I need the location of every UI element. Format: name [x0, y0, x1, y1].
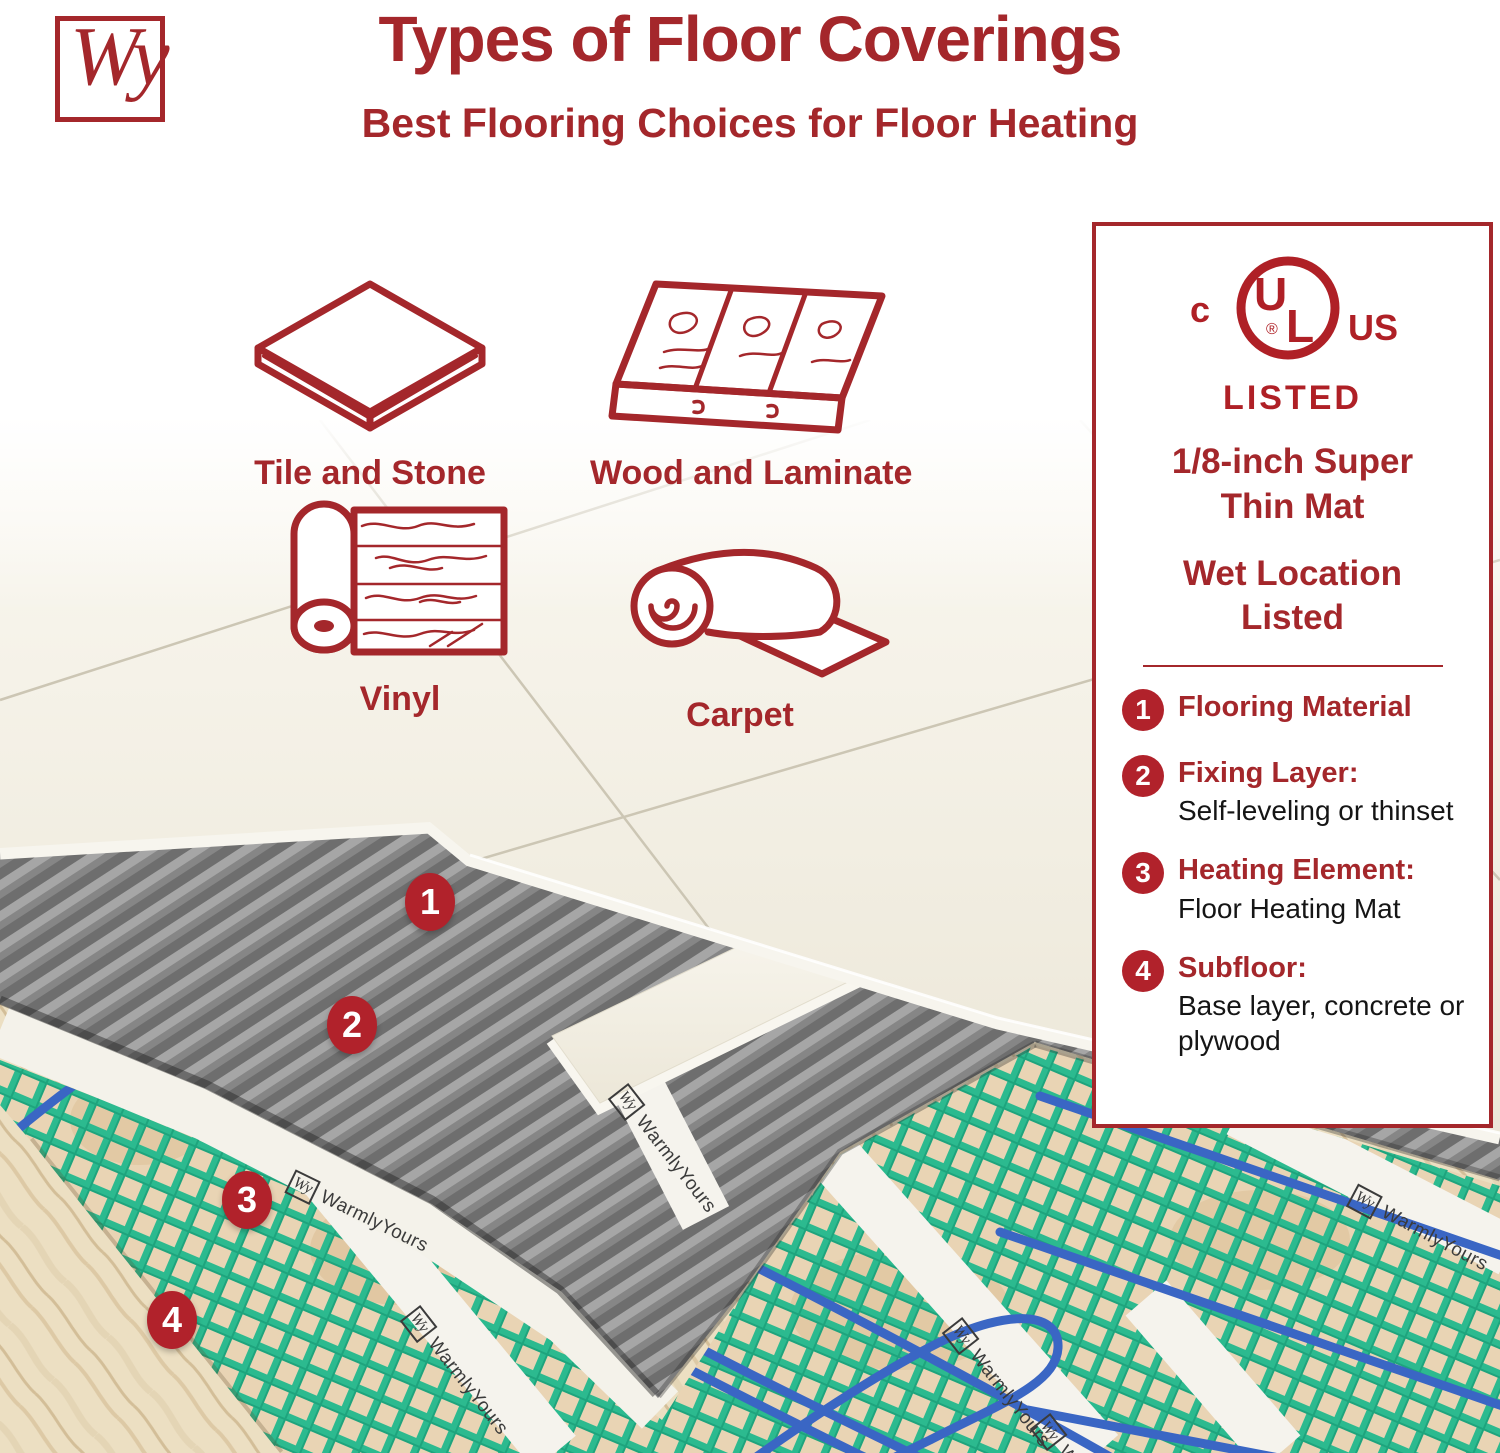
flooring-type-label: Carpet [590, 696, 890, 735]
page-subtitle: Best Flooring Choices for Floor Heating [0, 100, 1500, 147]
layer-marker-number: 2 [342, 1004, 362, 1046]
ul-listed-icon: c U L ® US [1168, 250, 1418, 372]
legend-row-3: 3Heating Element:Floor Heating Mat [1122, 852, 1465, 925]
page-title: Types of Floor Coverings [0, 2, 1500, 76]
tile-and-stone-icon [250, 278, 490, 448]
infographic: Wy Types of Floor Coverings Best Floorin… [0, 0, 1500, 1453]
legend-title: Fixing Layer: [1178, 755, 1453, 791]
vinyl-icon [280, 494, 520, 674]
product-info-panel: c U L ® US LISTED 1/8-inch Super Thin Ma… [1092, 222, 1493, 1128]
legend-number-badge: 3 [1122, 852, 1164, 894]
ul-listed-label: LISTED [1096, 379, 1489, 418]
legend-number-badge: 1 [1122, 689, 1164, 731]
flooring-type-carpet: Carpet [590, 520, 890, 735]
legend-description: Floor Heating Mat [1178, 891, 1415, 926]
flooring-type-label: Vinyl [280, 680, 520, 719]
legend-title: Subfloor: [1178, 950, 1465, 986]
layer-marker-1: 1 [405, 873, 455, 931]
panel-headline-thin-mat: 1/8-inch Super Thin Mat [1133, 440, 1453, 530]
legend-description: Base layer, concrete or plywood [1178, 988, 1465, 1058]
flooring-type-label: Wood and Laminate [590, 454, 890, 493]
legend-row-2: 2Fixing Layer:Self-leveling or thinset [1122, 755, 1465, 828]
flooring-type-tile-and-stone: Tile and Stone [240, 278, 500, 493]
layer-marker-number: 4 [162, 1299, 182, 1341]
layer-marker-3: 3 [222, 1171, 272, 1229]
legend-row-1: 1Flooring Material [1122, 689, 1465, 731]
layer-marker-4: 4 [147, 1291, 197, 1349]
svg-text:US: US [1348, 307, 1398, 348]
panel-headline-wet-location: Wet Location Listed [1133, 552, 1453, 642]
wood-and-laminate-icon [590, 272, 890, 448]
layers-legend: 1Flooring Material2Fixing Layer:Self-lev… [1122, 689, 1465, 1058]
svg-text:U: U [1254, 268, 1287, 320]
flooring-type-vinyl: Vinyl [280, 494, 520, 719]
layer-marker-number: 3 [237, 1179, 257, 1221]
svg-text:®: ® [1266, 321, 1278, 338]
layer-marker-2: 2 [327, 996, 377, 1054]
legend-description: Self-leveling or thinset [1178, 793, 1453, 828]
flooring-type-label: Tile and Stone [240, 454, 500, 493]
flooring-type-wood-and-laminate: Wood and Laminate [590, 272, 890, 493]
svg-text:L: L [1286, 300, 1314, 352]
layer-marker-number: 1 [420, 881, 440, 923]
svg-text:c: c [1190, 289, 1210, 330]
carpet-icon [590, 520, 890, 690]
legend-title: Heating Element: [1178, 852, 1415, 888]
ul-certification-mark: c U L ® US LISTED [1096, 250, 1489, 418]
legend-number-badge: 2 [1122, 755, 1164, 797]
legend-number-badge: 4 [1122, 950, 1164, 992]
legend-row-4: 4Subfloor:Base layer, concrete or plywoo… [1122, 950, 1465, 1058]
legend-title: Flooring Material [1178, 689, 1412, 725]
panel-divider [1143, 665, 1443, 667]
